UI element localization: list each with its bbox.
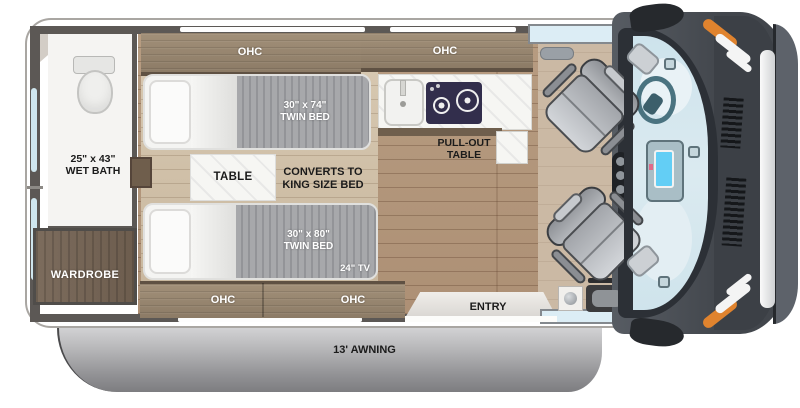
entry-light <box>564 292 577 305</box>
windshield-pillar <box>624 30 633 316</box>
pullout-line2: TABLE <box>416 149 512 161</box>
van-grille <box>720 97 743 148</box>
converts-to-king-label: CONVERTS TO KING SIZE BED <box>266 166 380 191</box>
top-window <box>180 27 365 32</box>
rv-floorplan: 13' AWNING 25" x 43" WET BATH WARDROBE O… <box>0 0 800 408</box>
sink-drain <box>400 101 406 107</box>
bed-size: 30" x 74" <box>241 100 369 112</box>
toilet-bowl <box>77 70 113 114</box>
bed-size: 30" x 80" <box>241 229 376 241</box>
stove-knob <box>430 87 434 91</box>
cab-side-window <box>528 24 625 44</box>
wet-bath-name: WET BATH <box>46 165 140 177</box>
awning-shape <box>57 323 602 392</box>
pillow <box>149 209 191 274</box>
entry-light-box <box>558 286 583 311</box>
infotainment-screen <box>654 150 674 188</box>
twin-bed-top-label: 30" x 74" TWIN BED <box>241 100 369 123</box>
table-label: TABLE <box>214 171 253 184</box>
ohc-label: OHC <box>303 294 403 307</box>
console-light <box>649 164 653 170</box>
converts-line1: CONVERTS TO <box>266 166 380 179</box>
wardrobe-label: WARDROBE <box>33 269 137 282</box>
wet-bath-size: 25" x 43" <box>46 153 140 165</box>
bed-name: TWIN BED <box>241 241 376 253</box>
wet-bath-label: 25" x 43" WET BATH <box>46 153 140 177</box>
pillow <box>149 80 191 144</box>
dash-vent <box>688 146 700 158</box>
rear-door-window <box>31 88 37 172</box>
bed-name: TWIN BED <box>241 112 369 124</box>
awning-label: 13' AWNING <box>57 344 602 357</box>
faucet <box>400 80 406 96</box>
rear-door-seam <box>27 186 43 189</box>
entry-label: ENTRY <box>438 301 538 314</box>
twin-bed-bottom-label: 30" x 80" TWIN BED <box>241 229 376 252</box>
stove-burner <box>433 97 450 114</box>
twin-bed-top: 30" x 74" TWIN BED <box>143 74 371 150</box>
ohc-label: OHC <box>195 46 305 59</box>
pull-out-table-label: PULL-OUT TABLE <box>416 137 512 161</box>
dash-vent <box>658 276 670 288</box>
converts-line2: KING SIZE BED <box>266 179 380 192</box>
van-chrome-strip <box>760 50 775 308</box>
wardrobe-cabinet <box>33 228 137 305</box>
cab-door-handle <box>540 47 574 60</box>
ohc-label: OHC <box>173 294 273 307</box>
pullout-line1: PULL-OUT <box>416 137 512 149</box>
van-bumper <box>773 24 798 324</box>
stove-burner <box>456 89 479 112</box>
tv-label: 24" TV <box>340 264 370 275</box>
dinette-table: TABLE <box>190 154 276 201</box>
ohc-label: OHC <box>390 45 500 58</box>
stove-knob <box>436 84 440 88</box>
bed-sheet <box>191 205 241 278</box>
dash-vent <box>664 58 676 70</box>
counter-edge <box>378 128 502 136</box>
top-window <box>390 27 516 32</box>
entry-sill <box>405 316 557 322</box>
bed-sheet <box>191 76 241 148</box>
twin-bed-bottom: 30" x 80" TWIN BED 24" TV <box>143 203 378 280</box>
